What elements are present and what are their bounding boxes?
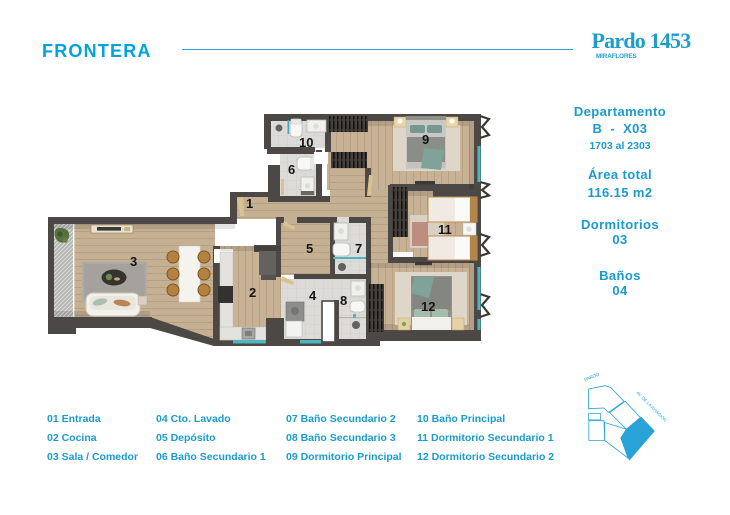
svg-text:2: 2 <box>249 285 256 300</box>
svg-text:4: 4 <box>309 288 317 303</box>
svg-text:7: 7 <box>355 241 362 256</box>
svg-text:11: 11 <box>438 222 452 237</box>
svg-text:6: 6 <box>288 162 295 177</box>
svg-text:PARDO: PARDO <box>583 371 600 382</box>
svg-text:5: 5 <box>306 241 313 256</box>
svg-text:9: 9 <box>422 132 429 147</box>
svg-text:12: 12 <box>421 299 435 314</box>
svg-text:3: 3 <box>130 254 137 269</box>
svg-text:1: 1 <box>246 196 253 211</box>
svg-text:10: 10 <box>299 135 313 150</box>
svg-text:8: 8 <box>340 293 347 308</box>
